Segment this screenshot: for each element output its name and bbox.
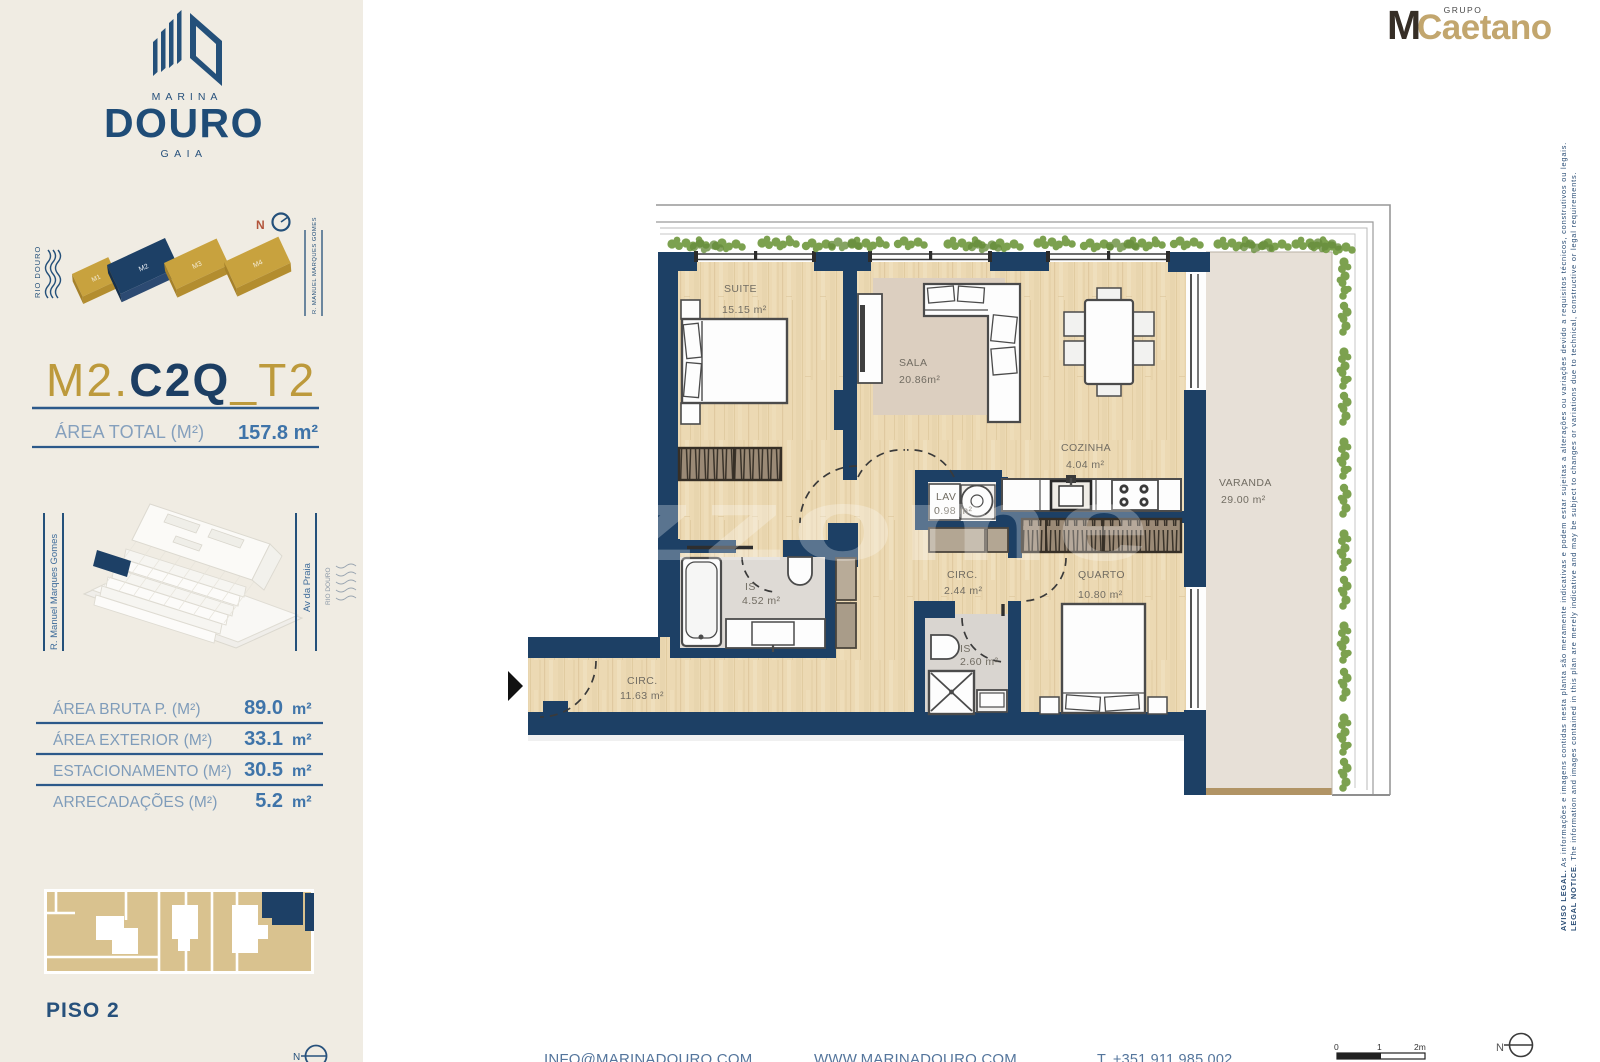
- svg-text:PISO 2: PISO 2: [46, 999, 120, 1022]
- svg-text:m²: m²: [292, 763, 312, 780]
- svg-text:IS: IS: [960, 643, 971, 655]
- svg-text:R. MANUEL MARQUES GOMES: R. MANUEL MARQUES GOMES: [312, 217, 318, 314]
- svg-text:20.86m²: 20.86m²: [899, 374, 940, 386]
- svg-text:M2.C2Q_T2: M2.C2Q_T2: [46, 354, 316, 406]
- svg-text:WWW.MARINADOURO.COM: WWW.MARINADOURO.COM: [814, 1051, 1017, 1062]
- svg-text:GAIA: GAIA: [160, 148, 207, 160]
- svg-text:zzome: zzome: [612, 465, 1155, 582]
- svg-text:2.60 m²: 2.60 m²: [960, 656, 998, 668]
- svg-text:10.80 m²: 10.80 m²: [1078, 589, 1123, 601]
- svg-text:CIRC.: CIRC.: [627, 675, 658, 687]
- svg-text:0: 0: [1334, 1042, 1339, 1052]
- svg-text:2m: 2m: [1414, 1042, 1426, 1052]
- svg-text:SUITE: SUITE: [724, 283, 757, 295]
- svg-text:AVISO LEGAL. As informações e: AVISO LEGAL. As informações e imagens co…: [1559, 142, 1568, 931]
- svg-text:N: N: [1496, 1042, 1504, 1054]
- svg-text:R. Manuel Marques Gomes: R. Manuel Marques Gomes: [49, 534, 60, 650]
- svg-text:ÁREA EXTERIOR (M²): ÁREA EXTERIOR (M²): [53, 732, 212, 749]
- svg-text:33.1: 33.1: [244, 728, 283, 750]
- svg-text:Caetano: Caetano: [1417, 8, 1552, 47]
- svg-text:RIO DOURO: RIO DOURO: [33, 246, 42, 298]
- svg-text:DOURO: DOURO: [104, 100, 264, 146]
- svg-text:INFO@MARINADOURO.COM: INFO@MARINADOURO.COM: [544, 1051, 752, 1062]
- svg-text:ÁREA BRUTA P. (M²): ÁREA BRUTA P. (M²): [53, 701, 201, 718]
- svg-text:157.8 m²: 157.8 m²: [238, 422, 318, 444]
- svg-text:Av da Praia: Av da Praia: [302, 562, 313, 612]
- svg-text:m²: m²: [292, 794, 312, 811]
- svg-text:COZINHA: COZINHA: [1061, 442, 1111, 454]
- svg-text:m²: m²: [292, 701, 312, 718]
- svg-text:89.0: 89.0: [244, 697, 283, 719]
- svg-text:LEGAL NOTICE. The information: LEGAL NOTICE. The information and images…: [1569, 172, 1578, 931]
- svg-text:15.15 m²: 15.15 m²: [722, 304, 767, 316]
- svg-text:ARRECADAÇÕES (M²): ARRECADAÇÕES (M²): [53, 794, 217, 811]
- svg-text:T. +351 911 985 002: T. +351 911 985 002: [1097, 1052, 1232, 1062]
- svg-text:IS: IS: [745, 581, 756, 593]
- svg-text:SALA: SALA: [899, 357, 927, 369]
- svg-text:5.2: 5.2: [255, 790, 283, 812]
- svg-text:m²: m²: [292, 732, 312, 749]
- svg-text:29.00 m²: 29.00 m²: [1221, 494, 1266, 506]
- svg-text:N: N: [293, 1052, 300, 1062]
- svg-text:VARANDA: VARANDA: [1219, 477, 1272, 489]
- svg-text:1: 1: [1377, 1042, 1382, 1052]
- svg-text:30.5: 30.5: [244, 759, 283, 781]
- svg-text:RIO DOURO: RIO DOURO: [325, 567, 332, 605]
- svg-text:ESTACIONAMENTO (M²): ESTACIONAMENTO (M²): [53, 763, 232, 780]
- svg-text:ÁREA TOTAL (M²): ÁREA TOTAL (M²): [55, 422, 204, 442]
- svg-text:N: N: [256, 218, 265, 232]
- svg-text:4.52 m²: 4.52 m²: [742, 595, 780, 607]
- svg-text:11.63 m²: 11.63 m²: [620, 690, 664, 702]
- svg-text:2.44 m²: 2.44 m²: [944, 585, 982, 597]
